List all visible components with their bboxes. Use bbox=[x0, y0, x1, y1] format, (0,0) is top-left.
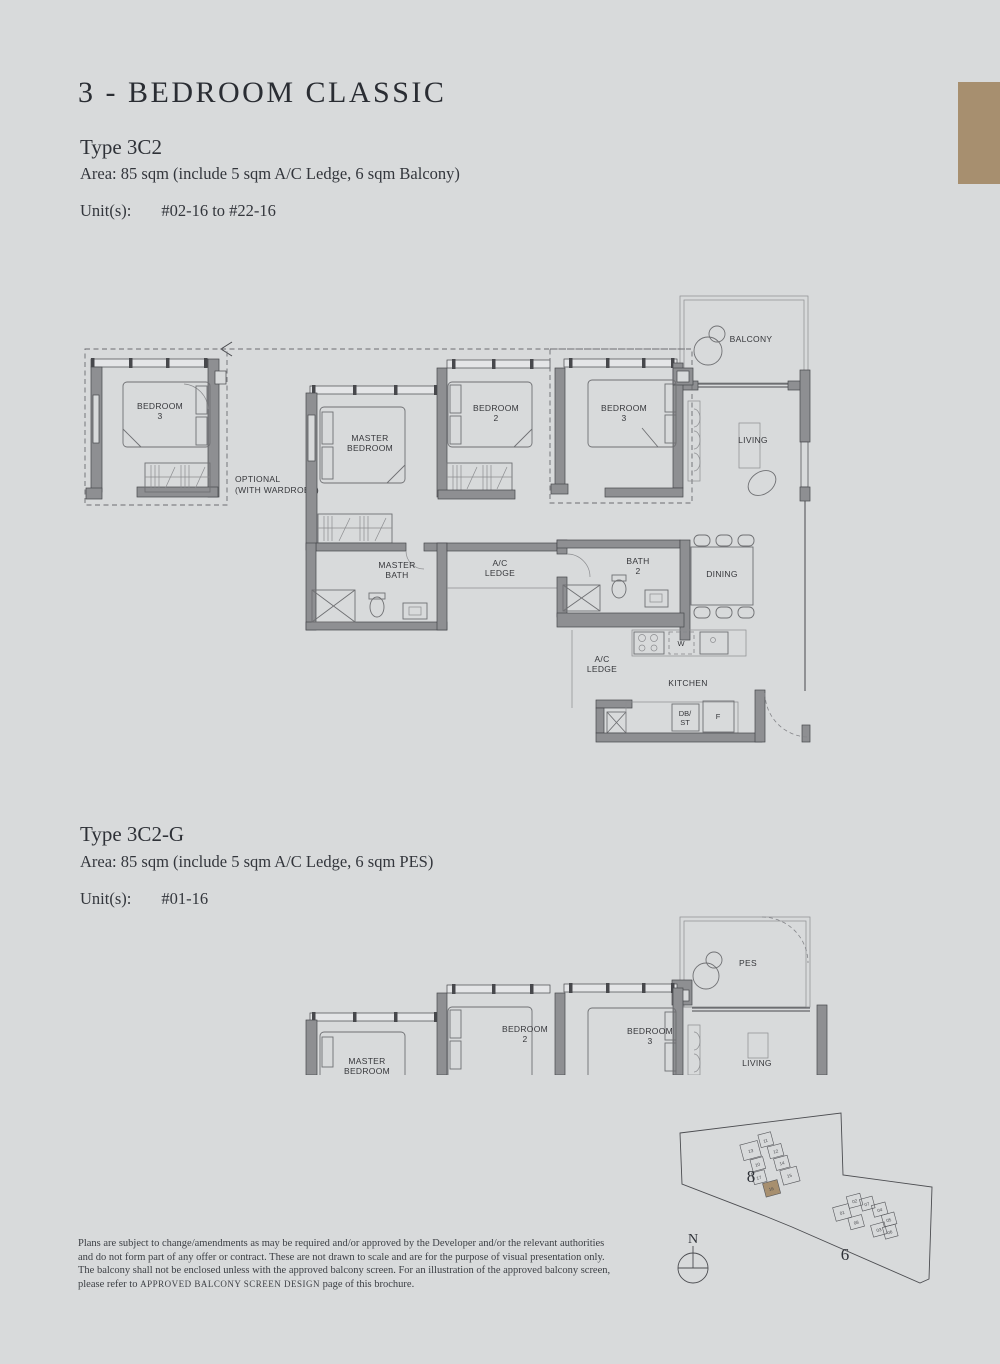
sink-icon bbox=[645, 590, 668, 607]
site-plan: 13 11 12 10 17 14 15 16 8 02 01 07 04 08… bbox=[660, 1100, 980, 1300]
block-6-cluster: 02 01 07 04 08 05 03 06 bbox=[831, 1186, 900, 1250]
room-label: 3 bbox=[157, 411, 162, 421]
toilet-icon bbox=[612, 580, 626, 598]
room-master-bedroom: MASTER BEDROOM bbox=[306, 368, 447, 550]
page-title: 3 - BEDROOM CLASSIC bbox=[78, 76, 446, 110]
unit-number: 03 bbox=[876, 1227, 883, 1233]
room-label: BEDROOM bbox=[473, 403, 519, 413]
room-label: 2 bbox=[493, 413, 498, 423]
plant-icon bbox=[694, 337, 722, 365]
room-master-bath: MASTER BATH bbox=[306, 543, 447, 630]
room-label: BEDROOM bbox=[627, 1026, 673, 1036]
room-label: BEDROOM bbox=[344, 1066, 390, 1075]
room-label: 3 bbox=[647, 1036, 652, 1046]
floor-plan-type-3c2g: PES bbox=[72, 900, 832, 1075]
coffee-table-icon bbox=[748, 1033, 768, 1058]
room-label: KITCHEN bbox=[668, 678, 707, 688]
room-label: MASTER bbox=[378, 560, 415, 570]
hob-icon bbox=[634, 632, 664, 654]
coffee-table-icon bbox=[739, 423, 760, 468]
chair-icon bbox=[716, 535, 732, 546]
bed-icon bbox=[123, 382, 210, 447]
room-label: 3 bbox=[621, 413, 626, 423]
room-label: LEDGE bbox=[587, 664, 617, 674]
room-label: DINING bbox=[706, 569, 738, 579]
units-value: #02-16 to #22-16 bbox=[161, 201, 276, 220]
units-label: Unit(s): bbox=[80, 201, 131, 220]
room-dining: DINING bbox=[691, 535, 754, 618]
sink-icon bbox=[403, 603, 427, 619]
room-label: MASTER bbox=[351, 433, 388, 443]
disclaimer: Plans are subject to change/amendments a… bbox=[78, 1237, 618, 1291]
unit-number: 04 bbox=[877, 1207, 884, 1213]
site-boundary bbox=[680, 1113, 932, 1283]
room-label: BEDROOM bbox=[502, 1024, 548, 1034]
unit-number: 15 bbox=[786, 1173, 793, 1179]
room-label: BALCONY bbox=[730, 334, 773, 344]
north-label: N bbox=[688, 1232, 698, 1247]
room-label: A/C bbox=[492, 558, 507, 568]
room-label: BEDROOM bbox=[137, 401, 183, 411]
type-3c2-label: Type 3C2 bbox=[80, 135, 162, 160]
room-label: 2 bbox=[635, 566, 640, 576]
unit-number: 01 bbox=[839, 1210, 846, 1216]
page-edge-tab bbox=[958, 82, 1000, 184]
room-label: PES bbox=[739, 958, 757, 968]
armchair-icon bbox=[743, 465, 780, 500]
block-6-label: 6 bbox=[841, 1245, 850, 1264]
toilet-icon bbox=[370, 597, 384, 617]
chair-icon bbox=[716, 607, 732, 618]
room-bedroom2: BEDROOM 2 bbox=[438, 359, 550, 499]
floor-plan-type-3c2: BEDROOM 3 OPTIONAL (WITH WARDROBE) BALCO… bbox=[72, 285, 832, 750]
room-bath2: BATH 2 bbox=[557, 540, 690, 640]
unit-number: 14 bbox=[779, 1160, 786, 1166]
unit-number: 13 bbox=[748, 1148, 755, 1154]
chair-icon bbox=[694, 535, 710, 546]
room-label: LEDGE bbox=[485, 568, 515, 578]
room-bedroom3-optional: BEDROOM 3 bbox=[85, 349, 227, 505]
plant-icon bbox=[693, 963, 719, 989]
unit-number: 02 bbox=[852, 1198, 859, 1204]
room-bedroom3: BEDROOM 3 bbox=[550, 349, 693, 503]
room-label: BEDROOM bbox=[347, 443, 393, 453]
washer-label: W bbox=[677, 639, 685, 648]
room-label: BATH bbox=[385, 570, 408, 580]
chair-icon bbox=[738, 535, 754, 546]
room-label: A/C bbox=[594, 654, 609, 664]
room-label: LIVING bbox=[738, 435, 768, 445]
st-label: ST bbox=[680, 718, 690, 727]
room-label: BATH bbox=[626, 556, 649, 566]
room-living: LIVING bbox=[688, 370, 810, 691]
smallcaps-reference: APPROVED BALCONY SCREEN DESIGN bbox=[140, 1279, 320, 1289]
unit-number: 08 bbox=[853, 1219, 860, 1225]
optional-note: OPTIONAL bbox=[235, 474, 280, 484]
room-ac-ledge: A/C LEDGE bbox=[447, 543, 557, 588]
room-kitchen: W KITCHEN DB/ ST F bbox=[596, 630, 810, 742]
bed-icon bbox=[588, 1008, 676, 1075]
type-3c2g-label: Type 3C2-G bbox=[80, 822, 184, 847]
room-label: MASTER bbox=[348, 1056, 385, 1066]
chair-icon bbox=[738, 607, 754, 618]
bed-icon bbox=[588, 380, 676, 447]
pes-gate-arc bbox=[762, 917, 808, 963]
room-label: LIVING bbox=[742, 1058, 772, 1068]
fridge-label: F bbox=[716, 712, 721, 721]
room-label: 2 bbox=[522, 1034, 527, 1044]
db-label: DB/ bbox=[679, 709, 692, 718]
chair-icon bbox=[694, 607, 710, 618]
kitchen-sink-icon bbox=[700, 632, 728, 654]
disclaimer-line: please refer to APPROVED BALCONY SCREEN … bbox=[78, 1278, 618, 1292]
unit-number: 11 bbox=[763, 1138, 769, 1144]
unit-number: 12 bbox=[773, 1148, 780, 1154]
room-balcony: BALCONY bbox=[676, 296, 808, 390]
room-ac-ledge2: A/C LEDGE bbox=[572, 630, 632, 733]
disclaimer-line: and do not form part of any offer or con… bbox=[78, 1251, 618, 1265]
unit-number: 07 bbox=[864, 1201, 871, 1207]
disclaimer-line: Plans are subject to change/amendments a… bbox=[78, 1237, 618, 1251]
type-3c2-units: Unit(s):#02-16 to #22-16 bbox=[80, 201, 276, 221]
brochure-page: 3 - BEDROOM CLASSIC Type 3C2 Area: 85 sq… bbox=[0, 0, 1000, 1364]
unit-number: 06 bbox=[887, 1229, 894, 1235]
type-3c2-area: Area: 85 sqm (include 5 sqm A/C Ledge, 6… bbox=[80, 164, 460, 184]
unit-number: 05 bbox=[886, 1217, 893, 1223]
room-pes: PES bbox=[672, 917, 810, 1011]
type-3c2g-area: Area: 85 sqm (include 5 sqm A/C Ledge, 6… bbox=[80, 852, 433, 872]
block-8-label: 8 bbox=[747, 1167, 756, 1186]
unit-number: 10 bbox=[754, 1162, 761, 1168]
block-8-cluster: 13 11 12 10 17 14 15 16 bbox=[739, 1128, 802, 1201]
disclaimer-line: The balcony shall not be enclosed unless… bbox=[78, 1264, 618, 1278]
unit-number: 17 bbox=[756, 1175, 763, 1181]
north-compass-icon: N bbox=[678, 1232, 708, 1283]
room-label: BEDROOM bbox=[601, 403, 647, 413]
